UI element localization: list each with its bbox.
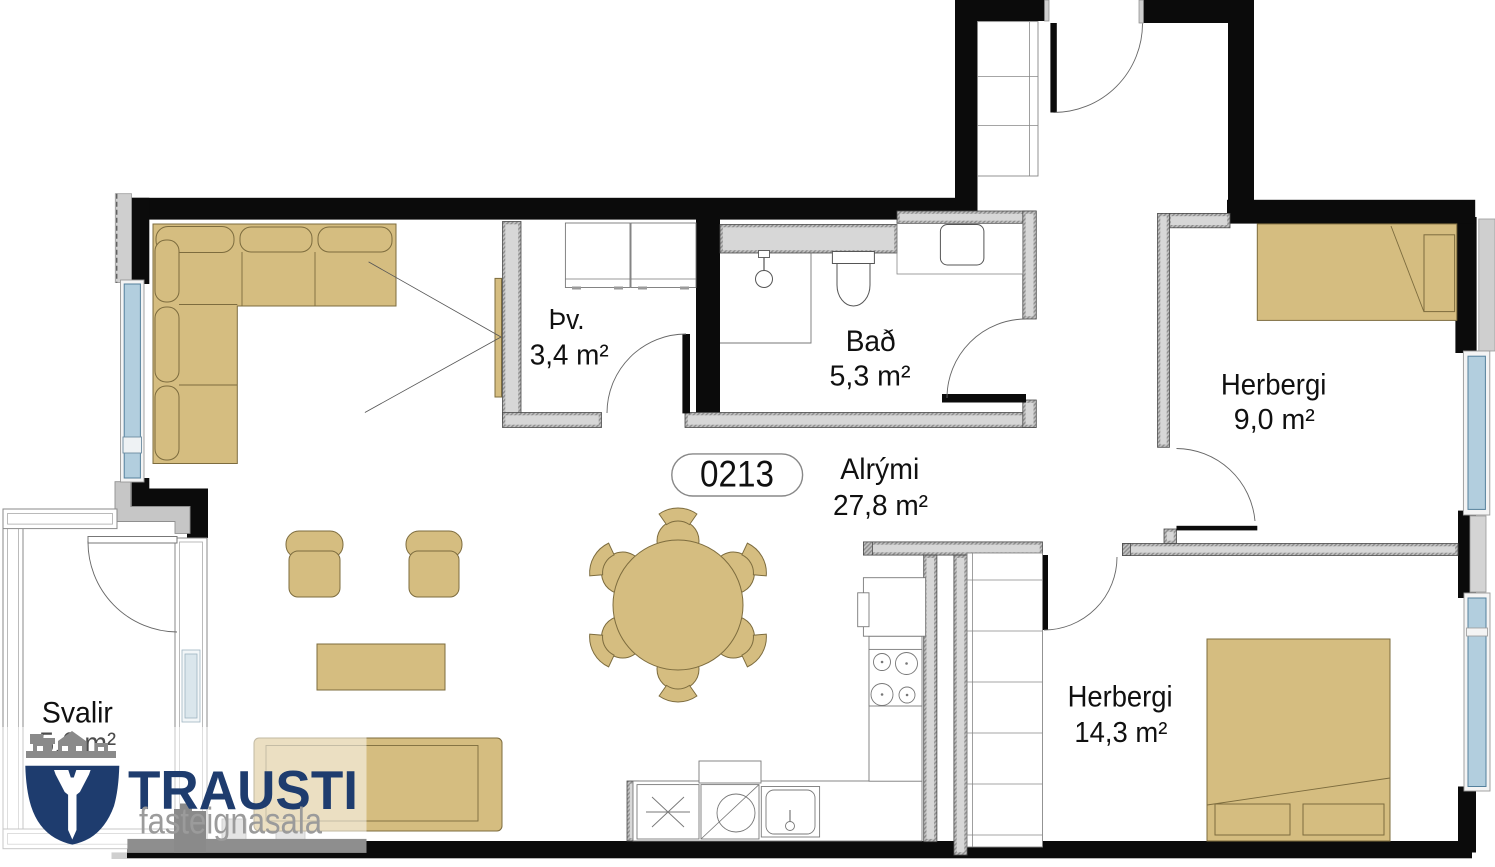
- svg-text:9,0 m²: 9,0 m²: [1234, 404, 1315, 436]
- svg-text:fasteignasala: fasteignasala: [139, 801, 322, 842]
- svg-text:27,8 m²: 27,8 m²: [833, 490, 928, 522]
- svg-text:Svalir: Svalir: [42, 697, 113, 730]
- svg-text:Herbergi: Herbergi: [1068, 681, 1173, 714]
- svg-text:Herbergi: Herbergi: [1221, 369, 1327, 402]
- svg-text:Alrými: Alrými: [840, 453, 919, 486]
- svg-text:Þv.: Þv.: [549, 304, 585, 336]
- svg-text:Bað: Bað: [846, 325, 896, 358]
- svg-text:0213: 0213: [700, 454, 774, 495]
- svg-text:3,4 m²: 3,4 m²: [530, 340, 609, 372]
- svg-text:5,3 m²: 5,3 m²: [830, 361, 911, 393]
- svg-text:14,3 m²: 14,3 m²: [1074, 717, 1167, 749]
